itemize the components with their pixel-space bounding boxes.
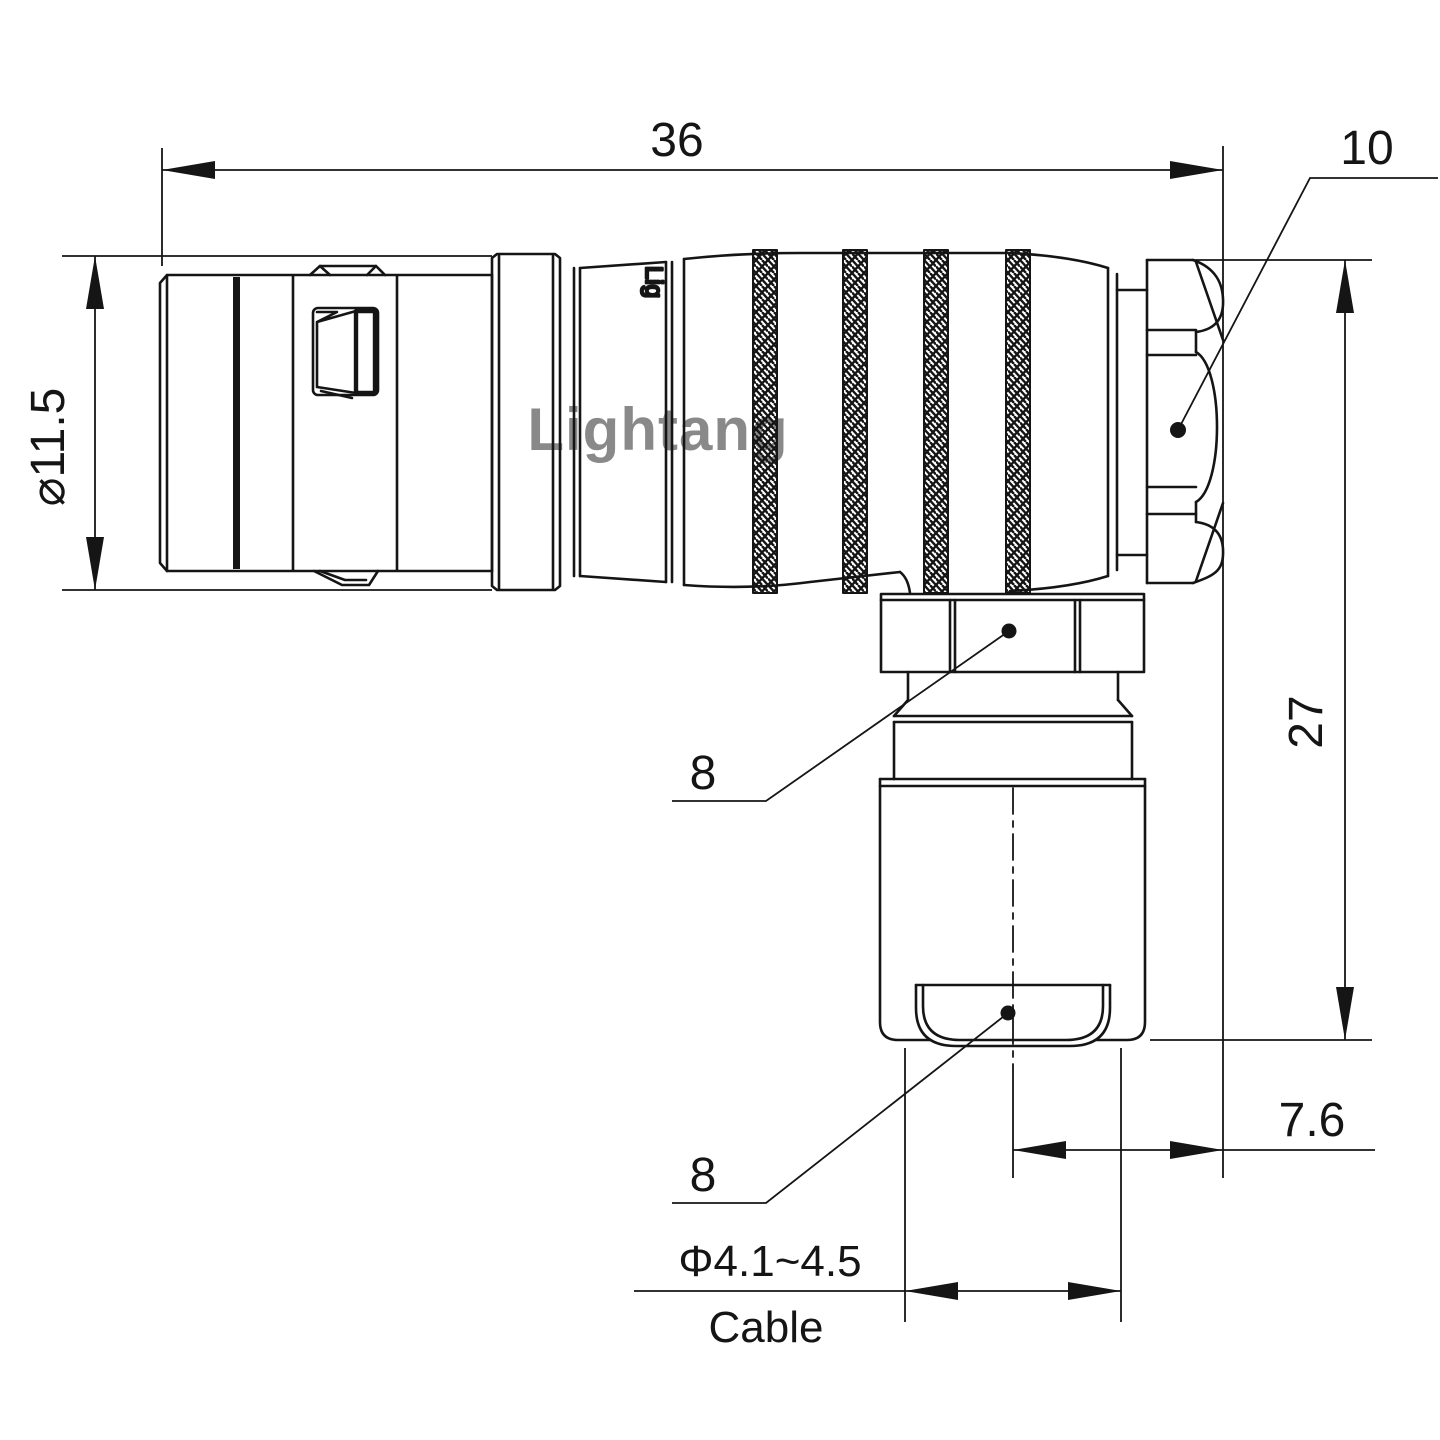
dim-text-cable-word: Cable xyxy=(709,1303,824,1352)
dim-text-shell-diameter: ⌀11.5 xyxy=(22,388,75,507)
dim-text-end-nut: 10 xyxy=(1340,122,1393,175)
watermark: Lightang xyxy=(527,396,788,463)
connector-drawing: Lightang xyxy=(0,0,1440,1440)
dim-text-overall-length: 36 xyxy=(650,114,703,167)
dim-text-cable-range: Φ4.1~4.5 xyxy=(678,1237,861,1286)
technical-drawing-page: Lightang xyxy=(0,0,1440,1440)
barrel-black-band xyxy=(233,277,240,569)
knurl-band xyxy=(1006,250,1030,593)
knurl-band xyxy=(843,250,867,593)
dim-text-bushing: 8 xyxy=(690,1149,717,1202)
knurl-band xyxy=(924,250,948,593)
shell-marking-text: Lig xyxy=(640,266,667,298)
dim-text-height: 27 xyxy=(1280,695,1333,748)
dim-text-backnut: 8 xyxy=(690,747,717,800)
dim-text-axis-offset: 7.6 xyxy=(1279,1094,1346,1147)
drawing-background xyxy=(0,0,1440,1440)
knurl-band xyxy=(753,250,777,593)
